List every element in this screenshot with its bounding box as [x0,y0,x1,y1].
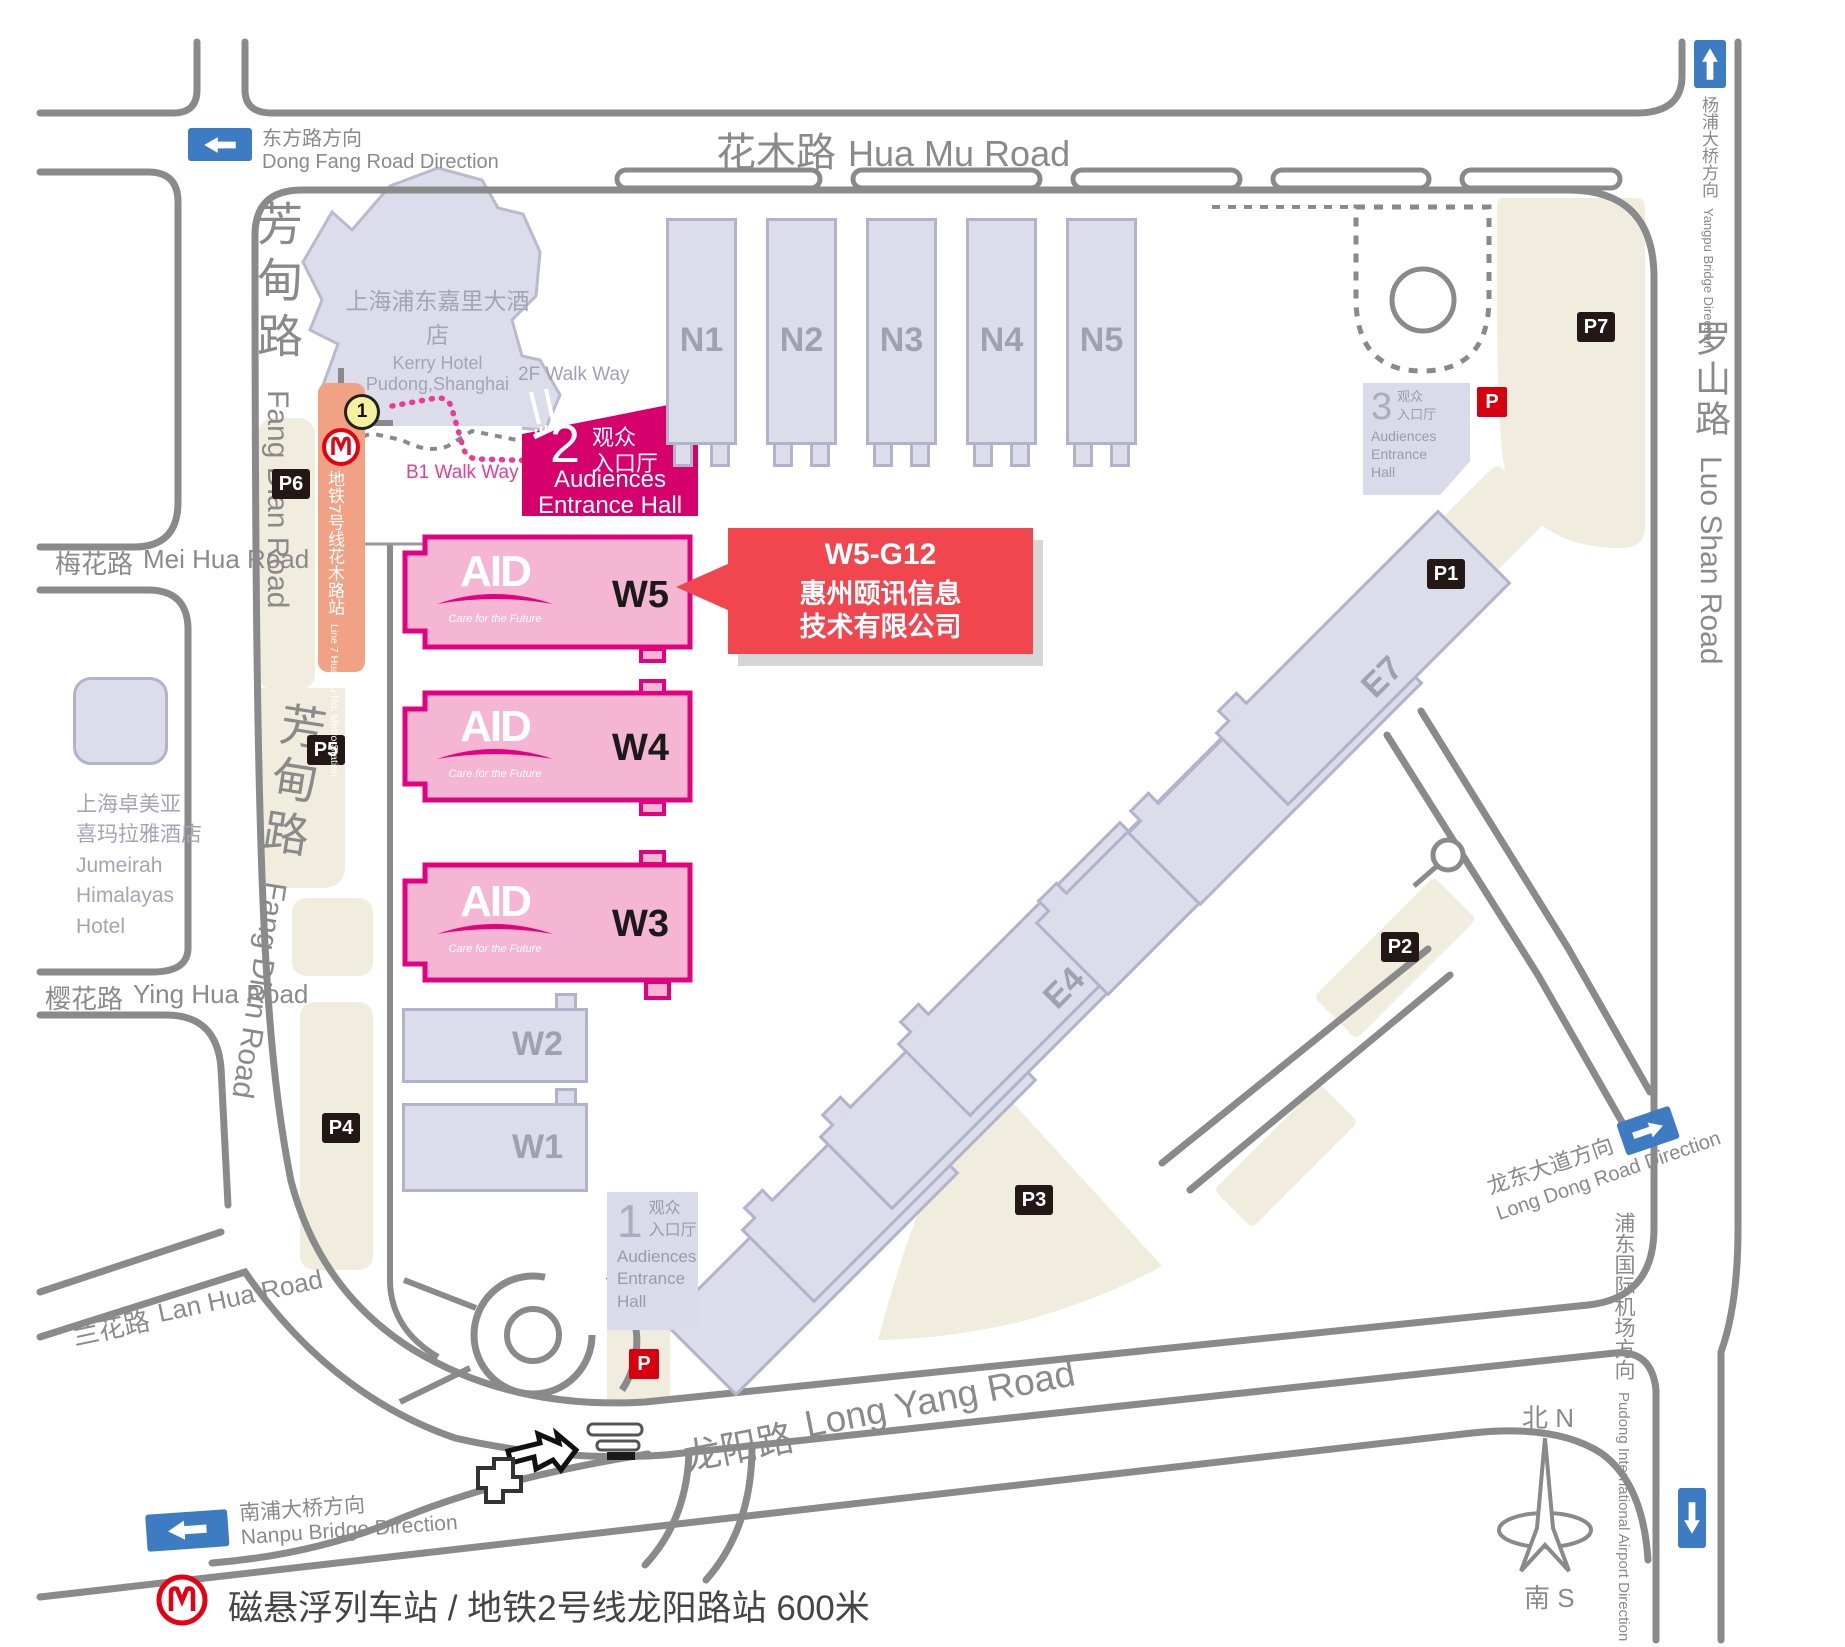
parking-icon: P [1477,387,1507,417]
cross-building-icon [478,1459,521,1502]
booth-callout: W5-G12 惠州颐讯信息 技术有限公司 [728,528,1033,654]
hall-tab [555,1088,577,1103]
hall-tab [1110,445,1130,467]
footer-metro-logo-icon [159,1577,205,1623]
hall-n5: N5 [1066,218,1137,445]
entrance-3: 3 观众 入口厅 Audiences Entrance Hall [1363,383,1470,495]
dashed-dome-area [1212,207,1489,371]
aid-swoosh-icon [435,592,555,606]
down-arrow-icon [1678,1488,1706,1548]
kerry-hotel-label: 上海浦东嘉里大酒店 Kerry Hotel Pudong,Shanghai [340,282,535,395]
compass-south-label: 南 S [1524,1578,1575,1615]
hall-tab [773,445,793,467]
up-arrow-icon [1694,40,1726,88]
roundabout [400,1276,637,1402]
aid-logo: AID Care for the Future [430,552,560,625]
landmark-buildings [478,1424,642,1502]
hall-tab [1010,445,1030,467]
footer-metro-note: 磁悬浮列车站 / 地铁2号线龙阳路站 600米 [228,1580,870,1631]
hall-tab [873,445,893,467]
sign-yangpu: 杨浦大桥方向 Yangpu Bridge Direction [1694,40,1726,348]
aid-swoosh-icon [435,747,555,761]
parking-p6: P6 [272,469,310,499]
aid-logo: AID Care for the Future [430,707,560,780]
hall-tab [810,445,830,467]
hall-n3: N3 [866,218,937,445]
road-label-hua-mu: 花木路 Hua Mu Road [716,120,1070,178]
road-label-fang-dian-top: 芳甸路 Fang Dian Road [244,200,310,680]
hall-tab [973,445,993,467]
hall-w4-label: W4 [612,727,669,770]
callout-arrow [676,563,730,611]
parking-p7: P7 [1577,312,1615,342]
hall-tab [710,445,730,467]
entrance-2: 2 观众 入口厅 Audiences Entrance Hall [522,396,698,520]
hall-tab [555,993,577,1008]
hall-tab [1073,445,1093,467]
hall-w2: W2 [402,1008,588,1083]
road-label-luo-shan: 罗山路 Luo Shan Road [1684,320,1736,680]
left-arrow-icon [145,1509,229,1552]
hall-n4: N4 [966,218,1037,445]
hall-w5-label: W5 [612,574,669,617]
parking-p1: P1 [1427,559,1465,589]
hall-w1: W1 [402,1103,588,1192]
entrance-1: 1 观众 入口厅 Audiences Entrance Hall [607,1192,698,1330]
road-label-mei-hua: 梅花路 Mei Hua Road [55,544,309,581]
sign-pudong-airport: 浦东国际机场方向 Pudong International Airport Di… [1608,1212,1638,1632]
sign-dong-fang: 东方路方向 Dong Fang Road Direction [188,128,499,174]
hall-w3-label: W3 [612,903,669,946]
jumeirah-hotel-label: 上海卓美亚 喜玛拉雅酒店 Jumeirah Himalayas Hotel [76,790,202,942]
parking-p3: P3 [1015,1185,1053,1215]
left-arrow-icon [188,128,252,161]
parking-icon: P [629,1349,659,1379]
hall-tab [910,445,930,467]
parking-p4: P4 [322,1113,360,1143]
jumeirah-hotel-building [73,677,168,765]
hall-n2: N2 [766,218,837,445]
aid-logo: AID Care for the Future [430,882,560,955]
road-label-ying-hua: 樱花路 Ying Hua Road [45,979,308,1016]
culdesac-icon [1414,840,1463,886]
expo-location-map: 花木路 Hua Mu Road 芳甸路 Fang Dian Road 芳甸路 F… [0,0,1845,1647]
metro-line7-label: 地铁7号线花木路站 Line 7 Hua Mu Rd. Metro Statio… [322,470,347,670]
arrow-building-icon [508,1434,576,1470]
compass-north-label: 北 N [1522,1398,1574,1435]
parking-p2: P2 [1381,932,1419,962]
metro-exit-badge: 1 [344,394,380,430]
aid-swoosh-icon [435,922,555,936]
walkway-2f-label: 2F Walk Way [518,364,630,386]
compass-needle-icon [1499,1438,1591,1571]
walkway-b1-label: B1 Walk Way [406,462,519,484]
